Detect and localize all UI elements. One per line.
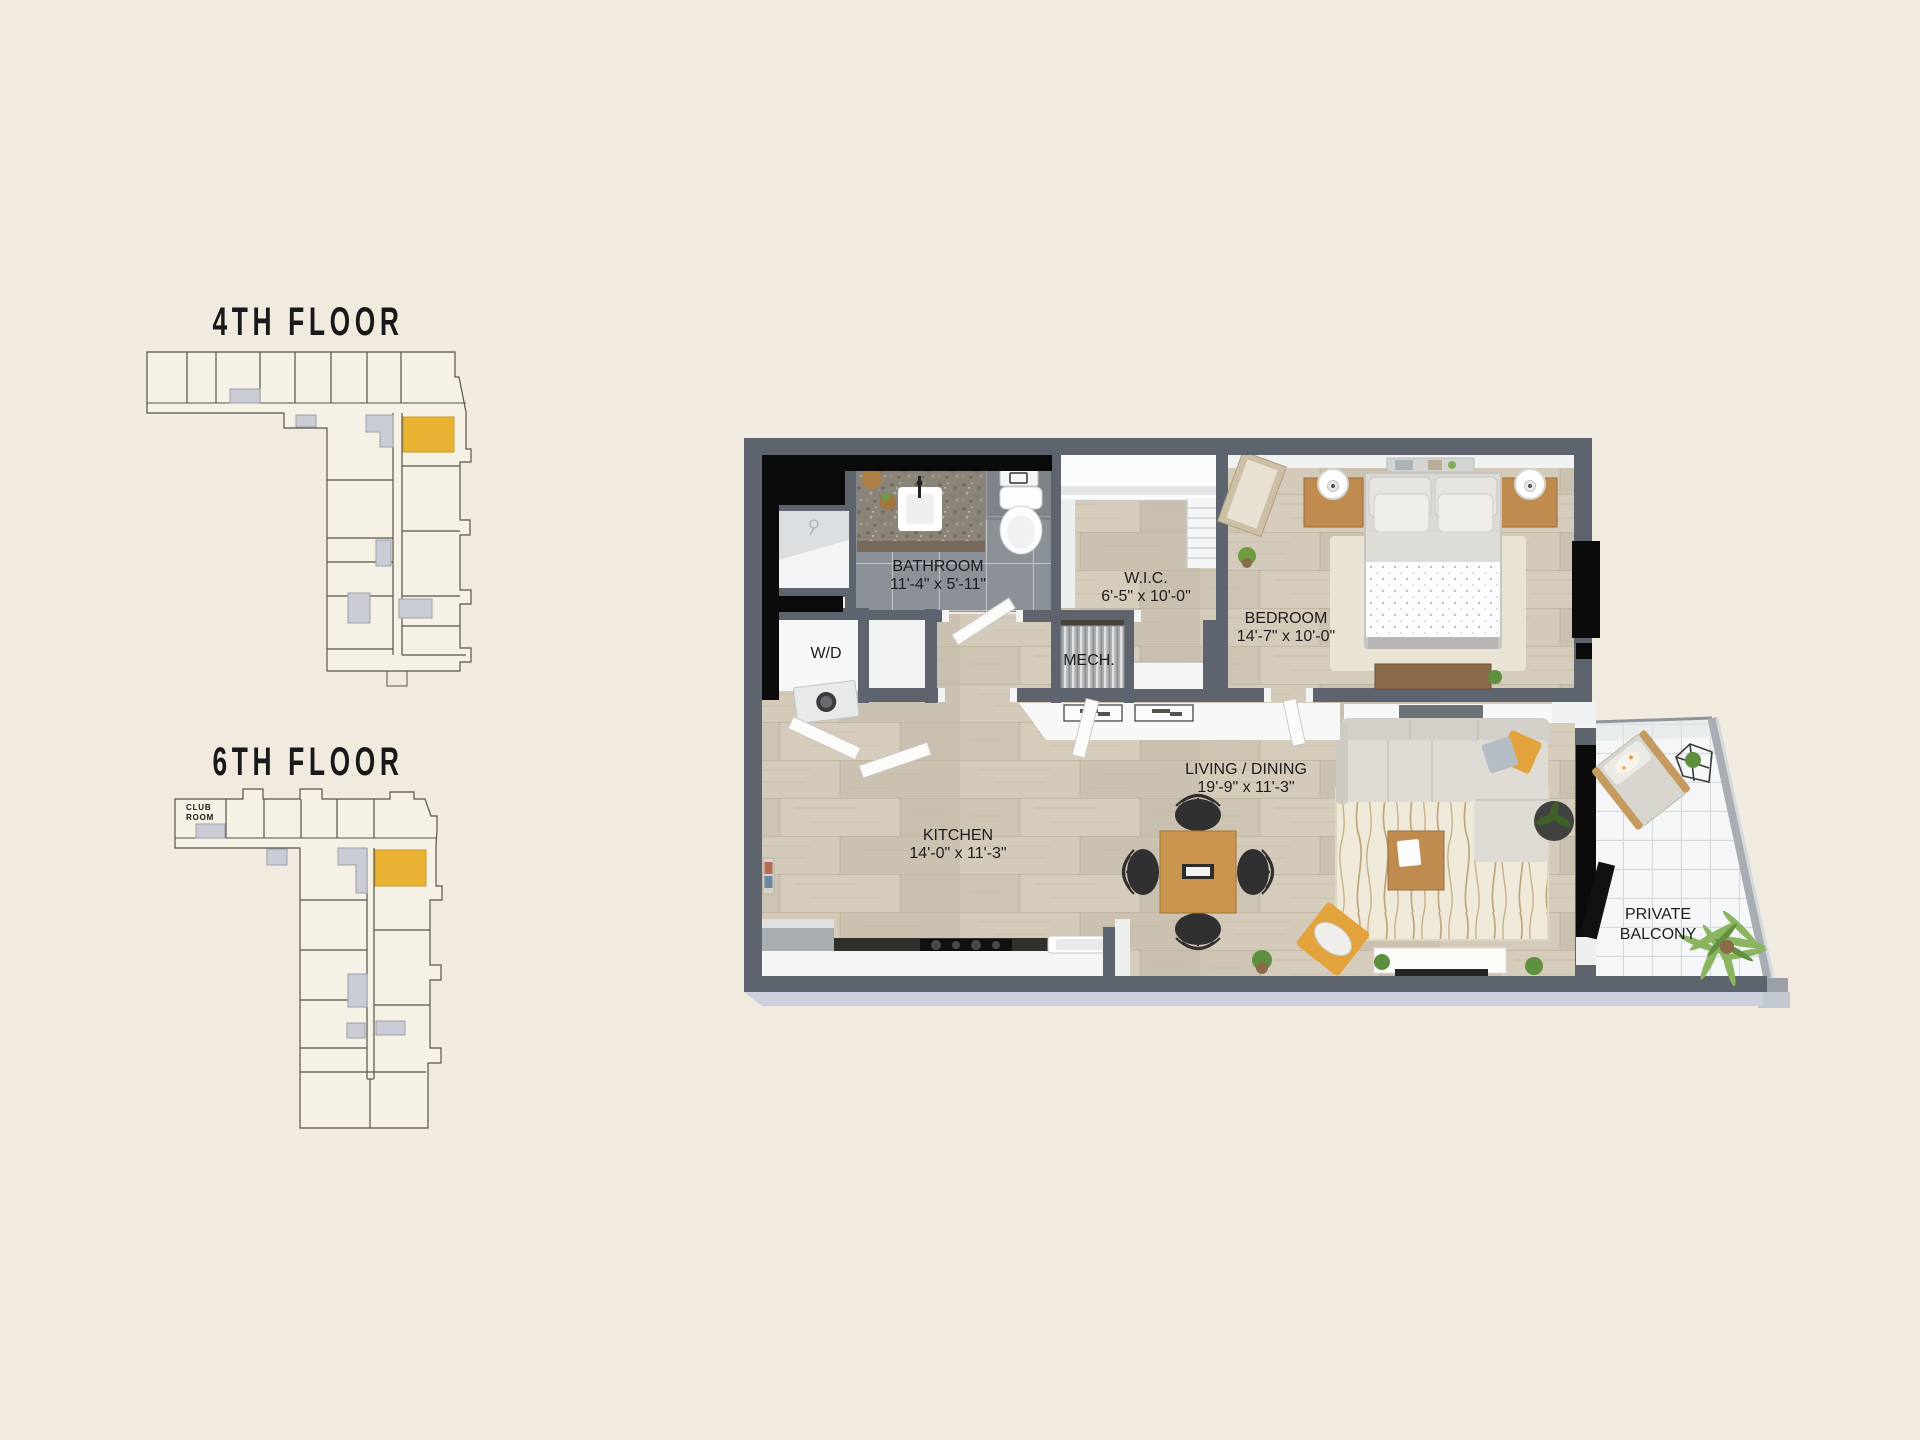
svg-text:LIVING / DINING: LIVING / DINING bbox=[1185, 761, 1307, 778]
svg-text:BALCONY: BALCONY bbox=[1620, 926, 1697, 943]
svg-text:CLUB: CLUB bbox=[186, 803, 211, 812]
svg-text:W.I.C.: W.I.C. bbox=[1124, 570, 1168, 587]
svg-text:BEDROOM: BEDROOM bbox=[1245, 610, 1328, 627]
svg-text:KITCHEN: KITCHEN bbox=[923, 827, 993, 844]
svg-text:PRIVATE: PRIVATE bbox=[1625, 906, 1691, 923]
svg-text:ROOM: ROOM bbox=[186, 813, 214, 822]
svg-text:MECH.: MECH. bbox=[1063, 652, 1115, 669]
svg-text:6'-5" x 10'-0": 6'-5" x 10'-0" bbox=[1101, 588, 1191, 605]
svg-text:19'-9" x 11'-3": 19'-9" x 11'-3" bbox=[1197, 779, 1294, 796]
svg-text:14'-0" x 11'-3": 14'-0" x 11'-3" bbox=[909, 845, 1006, 862]
svg-text:11'-4" x 5'-11": 11'-4" x 5'-11" bbox=[890, 576, 986, 593]
svg-text:4TH FLOOR: 4TH FLOOR bbox=[212, 300, 403, 345]
svg-text:BATHROOM: BATHROOM bbox=[892, 558, 983, 575]
svg-text:6TH FLOOR: 6TH FLOOR bbox=[212, 740, 403, 785]
svg-text:14'-7" x 10'-0": 14'-7" x 10'-0" bbox=[1237, 628, 1335, 645]
svg-text:W/D: W/D bbox=[810, 645, 841, 662]
